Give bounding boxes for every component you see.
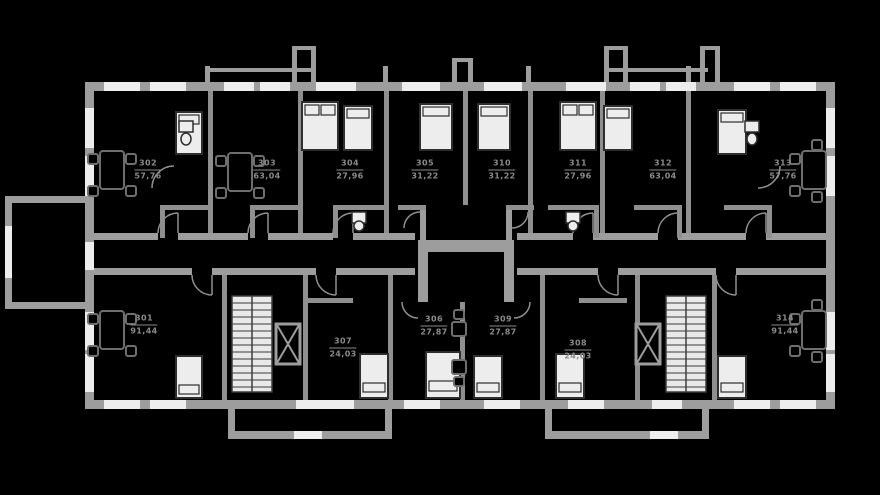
central-lobby-walls — [418, 205, 514, 302]
apartment-unit-307[interactable]: 307 24,03 — [329, 337, 356, 360]
apartment-unit-308[interactable]: 308 24,03 — [564, 339, 591, 362]
apartment-number: 301 — [130, 314, 157, 326]
toilet-icon — [566, 212, 580, 231]
apartment-unit-312[interactable]: 312 63,04 — [649, 159, 676, 182]
apartment-area: 91,44 — [130, 326, 157, 337]
apartment-area: 27,96 — [336, 171, 363, 182]
apartment-number: 310 — [488, 159, 515, 171]
apartment-unit-301[interactable]: 301 91,44 — [130, 314, 157, 337]
apartment-unit-311[interactable]: 311 27,96 — [564, 159, 591, 182]
apartment-number: 313 — [769, 159, 796, 171]
apartment-number: 305 — [411, 159, 438, 171]
apartment-unit-314[interactable]: 314 91,44 — [771, 314, 798, 337]
bed-icon — [604, 106, 632, 150]
toilet-icon — [745, 121, 759, 145]
apartment-number: 303 — [253, 159, 280, 171]
apartment-area: 27,87 — [489, 327, 516, 338]
bed-icon — [344, 106, 372, 150]
floor-plan-drawing — [0, 0, 880, 495]
annex-wall — [5, 302, 89, 309]
apartment-unit-305[interactable]: 305 31,22 — [411, 159, 438, 182]
apartment-number: 306 — [420, 315, 447, 327]
apartment-area: 24,03 — [329, 349, 356, 360]
stairwell-left — [232, 296, 300, 392]
bed-icon — [718, 110, 746, 154]
bed-icon — [302, 102, 338, 150]
small-table-icon — [452, 310, 466, 336]
apartment-area: 27,87 — [420, 327, 447, 338]
apartment-area: 31,22 — [411, 171, 438, 182]
apartment-area: 63,04 — [649, 171, 676, 182]
apartment-number: 311 — [564, 159, 591, 171]
apartment-number: 312 — [649, 159, 676, 171]
apartment-number: 302 — [134, 159, 161, 171]
stairwell-right — [636, 296, 706, 392]
apartment-number: 314 — [771, 314, 798, 326]
wall-top — [85, 82, 835, 91]
apartment-area: 24,03 — [564, 351, 591, 362]
dining-table-icon — [88, 311, 136, 356]
apartment-number: 304 — [336, 159, 363, 171]
bed-icon — [420, 104, 452, 150]
apartment-area: 57,76 — [134, 171, 161, 182]
apartment-number: 307 — [329, 337, 356, 349]
apartment-unit-313[interactable]: 313 57,76 — [769, 159, 796, 182]
bed-icon — [176, 112, 202, 154]
apartment-area: 27,96 — [564, 171, 591, 182]
apartment-area: 91,44 — [771, 326, 798, 337]
bed-icon — [176, 356, 202, 398]
apartment-unit-302[interactable]: 302 57,76 — [134, 159, 161, 182]
floor-plan-canvas: 301 91,44 302 57,76 303 63,04 304 27,96 … — [0, 0, 880, 495]
annex-wall — [5, 196, 89, 203]
bed-icon — [718, 356, 746, 398]
wall-bottom — [85, 400, 835, 409]
bed-icon — [478, 104, 510, 150]
apartment-number: 308 — [564, 339, 591, 351]
apartment-unit-304[interactable]: 304 27,96 — [336, 159, 363, 182]
apartment-number: 309 — [489, 315, 516, 327]
bed-icon — [474, 356, 502, 398]
apartment-unit-310[interactable]: 310 31,22 — [488, 159, 515, 182]
dining-table-icon — [88, 151, 136, 196]
apartment-unit-309[interactable]: 309 27,87 — [489, 315, 516, 338]
apartment-area: 57,76 — [769, 171, 796, 182]
small-table-icon — [452, 360, 466, 386]
toilet-icon — [352, 212, 366, 231]
apartment-unit-306[interactable]: 306 27,87 — [420, 315, 447, 338]
apartment-unit-303[interactable]: 303 63,04 — [253, 159, 280, 182]
bed-icon — [360, 354, 388, 398]
apartment-area: 31,22 — [488, 171, 515, 182]
bed-icon — [560, 102, 596, 150]
apartment-area: 63,04 — [253, 171, 280, 182]
